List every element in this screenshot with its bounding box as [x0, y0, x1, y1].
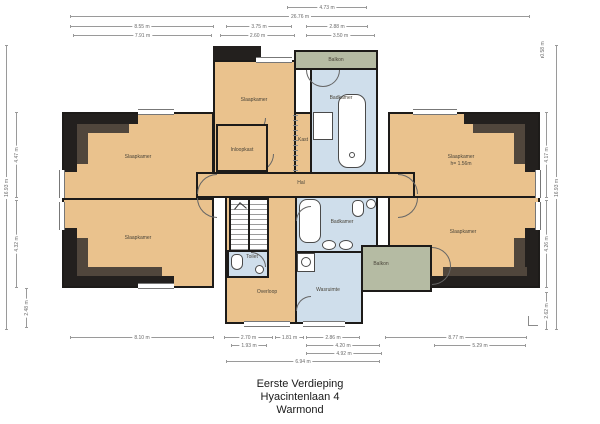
dim-top-6: 2.60 m: [220, 35, 295, 36]
dim-left-1: 4.47 m: [16, 112, 17, 198]
label-slaapkamer-top-center: Slaapkamer: [241, 97, 268, 103]
dim-right-3: 2.62 m: [546, 292, 547, 330]
dim-top-0: 4.73 m: [287, 7, 367, 8]
dim-bottom-9: 6.94 m: [226, 361, 380, 362]
dim-top-1-label: 26.76 m: [289, 14, 311, 20]
sink-mid-1: [322, 240, 336, 250]
dim-top-5-label: 7.91 m: [133, 33, 152, 39]
label-wasruimte: Wasruimte: [316, 287, 340, 293]
dim-right-3-label: 2.62 m: [544, 301, 550, 320]
dim-top-3: 3.75 m: [226, 26, 292, 27]
dim-left-2-label: 4.32 m: [14, 234, 20, 253]
dim-bottom-8: 4.92 m: [306, 353, 382, 354]
dim-right-0-label: 0.58 m: [540, 39, 546, 58]
label-inloopkast: Inloopkast: [231, 147, 254, 153]
dim-top-4-label: 2.88 m: [327, 24, 346, 30]
label-slaapkamer-bottom-left: Slaapkamer: [125, 235, 152, 241]
roof-band-bl-inner-bottom: [77, 267, 162, 276]
dim-right-4: 16.93 m: [556, 45, 557, 330]
dim-bottom-4-label: 8.77 m: [446, 335, 465, 341]
dim-bottom-3-label: 2.86 m: [323, 335, 342, 341]
roof-band-tl-inner-top: [77, 124, 129, 133]
title-city: Warmond: [0, 404, 600, 417]
roof-band-tl-outer-top: [64, 114, 138, 124]
title-block: Eerste Verdieping Hyacintenlaan 4 Warmon…: [0, 378, 600, 417]
label-badkamer-top: Badkamer: [330, 95, 353, 101]
label-slaapkamer-bottom-right: Slaapkamer: [450, 229, 477, 235]
window-left-wall-lower: [59, 202, 65, 230]
dim-bottom-7-label: 5.29 m: [470, 343, 489, 349]
title-floor-name: Eerste Verdieping: [0, 378, 600, 391]
dim-top-2: 8.55 m: [70, 26, 214, 27]
toilet-mid: [352, 200, 364, 217]
dim-top-7: 3.50 m: [306, 35, 375, 36]
dim-bottom-8-label: 4.92 m: [334, 351, 353, 357]
dim-bottom-0: 8.10 m: [70, 337, 214, 338]
sink-mid-round: [366, 199, 376, 209]
window-overloop-bottom: [244, 321, 290, 327]
bathroom-top-cabinet: [313, 112, 333, 140]
dim-right-4-label: 16.93 m: [554, 176, 560, 198]
scale-marker-icon: [528, 316, 538, 326]
dim-left-3: 2.48 m: [26, 288, 27, 328]
dim-bottom-6-label: 4.20 m: [333, 343, 352, 349]
window-right-wall-upper: [535, 170, 541, 198]
dim-bottom-6: 4.20 m: [306, 345, 380, 346]
toilet-wc: [231, 254, 243, 270]
dim-left-2: 4.32 m: [16, 200, 17, 288]
dim-left-0-label: 16.93 m: [4, 176, 10, 198]
dim-top-2-label: 8.55 m: [132, 24, 151, 30]
label-balkon-right: Balkon: [373, 261, 388, 267]
label-badkamer-mid: Badkamer: [331, 219, 354, 225]
dim-bottom-1: 2.70 m: [224, 337, 273, 338]
dim-bottom-5-label: 1.93 m: [239, 343, 258, 349]
dim-top-3-label: 3.75 m: [249, 24, 268, 30]
dim-bottom-5: 1.93 m: [231, 345, 267, 346]
window-right-wall-lower: [535, 202, 541, 230]
window-top-center: [256, 57, 292, 63]
room-hal: [196, 172, 415, 198]
staircase: [229, 198, 269, 252]
dim-top-1: 26.76 m: [70, 16, 530, 17]
dim-bottom-4: 8.77 m: [385, 337, 527, 338]
dim-top-0-label: 4.73 m: [317, 5, 336, 11]
label-slaapkamer-top-right: Slaapkamer: [448, 154, 475, 160]
label-kast: Kast: [298, 137, 308, 143]
bathtub-top-drain: [349, 152, 355, 158]
dim-right-1-label: 4.17 m: [544, 145, 550, 164]
dim-bottom-9-label: 6.94 m: [293, 359, 312, 365]
floorplan-page: Slaapkamer Slaapkamer Slaapkamer Inloopk…: [0, 0, 600, 424]
roof-band-tr-inner-top: [473, 124, 525, 133]
window-top-left-bedroom: [138, 109, 174, 115]
roof-band-br-inner-bottom: [443, 267, 527, 276]
window-bottom-left-bedroom: [138, 283, 174, 289]
staircase-divider: [248, 200, 250, 250]
label-overloop: Overloop: [257, 289, 277, 295]
dim-top-6-label: 2.60 m: [248, 33, 267, 39]
dim-right-0: 0.58 m: [542, 40, 543, 58]
door-balkon-top-left-leaf: [306, 70, 323, 87]
dim-bottom-3: 2.86 m: [306, 337, 360, 338]
title-address: Hyacintenlaan 4: [0, 391, 600, 404]
dim-left-1-label: 4.47 m: [14, 145, 20, 164]
room-balkon-right: [361, 245, 432, 292]
roof-band-tr-outer-top: [464, 114, 538, 124]
dim-right-1: 4.17 m: [546, 112, 547, 198]
label-hal: Hal: [297, 180, 305, 186]
dim-bottom-7: 5.29 m: [434, 345, 526, 346]
dim-right-2: 4.26 m: [546, 200, 547, 288]
dim-top-4: 2.88 m: [306, 26, 368, 27]
window-wasruimte-bottom: [303, 321, 345, 327]
label-slaapkamer-top-right-height: h= 1.56m: [451, 161, 472, 167]
window-left-wall-upper: [59, 170, 65, 198]
label-balkon-top: Balkon: [328, 57, 343, 63]
dim-left-0: 16.93 m: [6, 45, 7, 330]
sink-mid-2: [339, 240, 353, 250]
floorplan-drawing: Slaapkamer Slaapkamer Slaapkamer Inloopk…: [0, 0, 600, 424]
dim-bottom-0-label: 8.10 m: [132, 335, 151, 341]
label-slaapkamer-top-left: Slaapkamer: [125, 154, 152, 160]
kast-shelf-hatch: [293, 115, 298, 171]
dim-right-2-label: 4.26 m: [544, 234, 550, 253]
dim-top-7-label: 3.50 m: [331, 33, 350, 39]
dim-left-3-label: 2.48 m: [24, 298, 30, 317]
dim-bottom-1-label: 2.70 m: [239, 335, 258, 341]
window-top-right-bedroom: [413, 109, 457, 115]
dim-bottom-2: 1.81 m: [275, 337, 304, 338]
dim-top-5: 7.91 m: [73, 35, 212, 36]
dim-bottom-2-label: 1.81 m: [280, 335, 299, 341]
label-toilet: Toilet: [246, 254, 258, 260]
washing-machine-door: [301, 257, 311, 267]
